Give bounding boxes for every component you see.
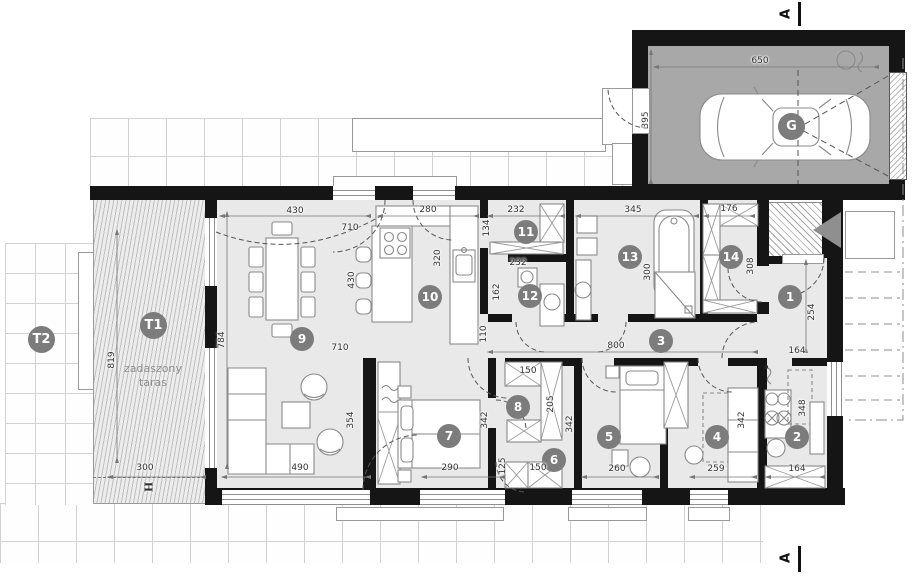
wall <box>614 358 698 366</box>
dim-r1-width: 164 <box>788 346 805 356</box>
terrace-step-3 <box>688 507 730 521</box>
dim-garage-width: 650 <box>751 56 768 66</box>
room-badge-3: 3 <box>649 329 673 353</box>
dim-r11-depth: 134 <box>482 219 492 236</box>
terrace-caption-line2: taras <box>103 376 203 389</box>
window <box>205 218 217 286</box>
room-badge-1: 1 <box>778 285 802 309</box>
window <box>827 362 843 416</box>
dim-living-left: 784 <box>217 331 227 348</box>
wall <box>488 358 496 398</box>
dim-r4-depth: 342 <box>737 411 747 428</box>
section-line-top <box>798 2 801 26</box>
terrace-t2-edge <box>78 252 94 390</box>
window <box>413 186 455 200</box>
entrance-porch-mat <box>767 202 824 258</box>
room-badge-13: 13 <box>618 245 642 269</box>
wall <box>205 286 217 348</box>
wall <box>792 358 827 366</box>
dim-lounge-width: 490 <box>291 463 308 473</box>
terrace-caption-line1: zadaszony <box>103 362 203 375</box>
garage-side-pad-1 <box>602 88 634 145</box>
wall <box>480 248 488 314</box>
garage-door <box>889 72 907 180</box>
entrance-pad <box>845 211 895 259</box>
window <box>420 490 505 505</box>
terrace-step-2 <box>568 507 647 521</box>
dim-r8-depth: 205 <box>546 395 556 412</box>
dim-r7-depth: 342 <box>480 411 490 428</box>
dim-r2-depth: 348 <box>798 399 808 416</box>
dim-r12-depth: 162 <box>492 283 502 300</box>
paving-platform-top <box>352 118 606 152</box>
wall <box>728 358 758 366</box>
dim-kitchen-top: 280 <box>419 205 436 215</box>
window <box>690 490 728 505</box>
dim-lounge-depth: 354 <box>346 411 356 428</box>
wall <box>632 30 905 46</box>
wall <box>700 200 708 314</box>
dim-r13-width: 345 <box>624 205 641 215</box>
wall <box>757 358 767 488</box>
dim-r11-width: 232 <box>507 205 524 215</box>
dim-r6-left: 125 <box>498 457 508 474</box>
dim-island-len: 430 <box>347 271 357 288</box>
room-badge-5: 5 <box>597 425 621 449</box>
room-badge-11: 11 <box>514 220 538 244</box>
dim-r14-depth: 308 <box>746 257 756 274</box>
dim-r5-width: 260 <box>608 464 625 474</box>
wall <box>757 302 769 314</box>
room-badge-10: 10 <box>418 285 442 309</box>
dim-r7-width: 290 <box>441 463 458 473</box>
section-marker-bottom: A <box>779 553 794 563</box>
entrance-door-threshold <box>782 254 824 264</box>
room-badge-14: 14 <box>719 245 743 269</box>
wall <box>205 198 217 218</box>
terrace-t2-badge: T2 <box>28 326 55 353</box>
dim-corridor-len: 800 <box>607 341 624 351</box>
wall <box>628 314 757 322</box>
dim-r6-width: 150 <box>529 463 546 473</box>
window <box>333 186 375 200</box>
dim-t1-width: 300 <box>136 463 153 473</box>
wall <box>488 314 512 322</box>
dim-r8-right: 342 <box>565 415 575 432</box>
room-badge-2: 2 <box>785 425 809 449</box>
dim-living-mid: 710 <box>331 343 348 353</box>
dim-r14-width: 176 <box>720 204 737 214</box>
dim-r2-width: 164 <box>788 464 805 474</box>
wall <box>488 428 496 488</box>
terrace-t1-edge-line <box>93 477 205 478</box>
wall <box>827 416 843 490</box>
room-badge-12: 12 <box>518 284 542 308</box>
dim-counter-len: 320 <box>433 249 443 266</box>
room-badge-8: 8 <box>506 395 530 419</box>
terrace-t1-badge: T1 <box>140 312 167 339</box>
window <box>572 490 642 505</box>
floor-garage <box>648 46 889 185</box>
wall <box>660 358 668 488</box>
dim-r12-width: 232 <box>509 258 526 268</box>
wall <box>827 256 843 362</box>
window <box>205 348 217 468</box>
wall <box>505 358 582 366</box>
wall <box>480 200 488 218</box>
wall <box>632 184 905 200</box>
floor-plan: 1 2 3 4 5 6 7 8 9 10 11 12 13 14 G T1 T2… <box>0 0 912 584</box>
garage-side-pad-2 <box>612 143 634 185</box>
dim-corridor-w: 110 <box>479 325 489 342</box>
terrace-step-1 <box>336 507 504 521</box>
dim-dining-width: 430 <box>286 206 303 216</box>
dim-t1-depth: 819 <box>107 351 117 368</box>
section-line-bottom <box>798 546 801 572</box>
column-symbol: H <box>142 482 155 492</box>
wall <box>757 256 782 264</box>
room-badge-4: 4 <box>705 425 729 449</box>
dim-r1-depth: 254 <box>807 303 817 320</box>
section-marker-top: A <box>779 9 794 19</box>
garage-badge: G <box>778 113 805 140</box>
wall <box>363 358 376 488</box>
dim-r13-tub: 300 <box>643 263 653 280</box>
dim-garage-depth: 395 <box>641 111 651 128</box>
wall <box>574 358 582 488</box>
dim-r4-width: 259 <box>707 464 724 474</box>
dim-dining-door: 710 <box>341 223 358 233</box>
room-badge-7: 7 <box>437 424 461 448</box>
wall <box>544 314 598 322</box>
window <box>222 490 370 505</box>
room-badge-9: 9 <box>290 327 314 351</box>
wall <box>822 198 843 258</box>
dim-r8-top: 150 <box>519 366 536 376</box>
